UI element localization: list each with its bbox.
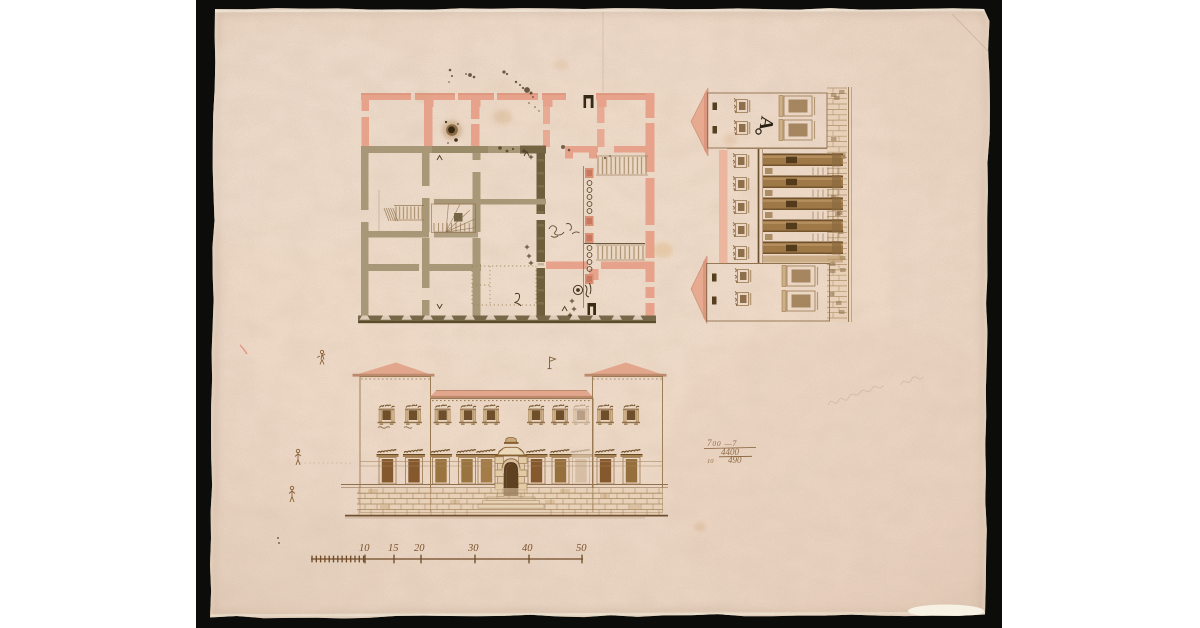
svg-text:50: 50 [576,543,587,554]
svg-text:15: 15 [388,543,399,554]
svg-text:10: 10 [359,543,370,554]
svg-text:10: 10 [707,458,714,465]
svg-text:30: 30 [467,543,479,554]
svg-text:40: 40 [522,543,533,554]
svg-text:20: 20 [414,543,425,554]
